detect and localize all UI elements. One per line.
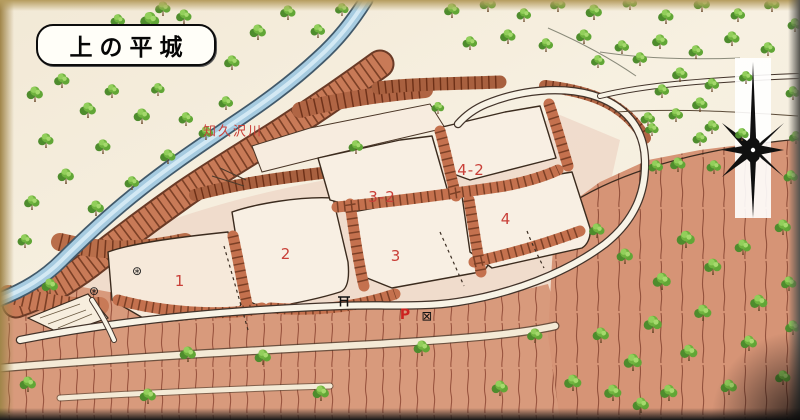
area-label-3-2: 3-2	[368, 188, 396, 206]
river-label: 知久沢川	[203, 121, 263, 140]
area-label-4-2: 4-2	[457, 161, 485, 179]
area-label-2: 2	[281, 245, 292, 263]
map-title: 上の平城	[70, 28, 190, 62]
shrine-icon: ⊛	[132, 264, 142, 278]
map-title-box: 上の平城	[36, 24, 216, 66]
torii-icon	[338, 293, 351, 312]
parking-label: P	[400, 307, 410, 323]
area-label-4: 4	[501, 210, 512, 228]
shrine-icon: ⊛	[89, 284, 99, 298]
castle-map: 上の平城 知久沢川 1 2 3 3-2 4 4-2 P ⊠ ⊛ ⊛	[0, 0, 800, 420]
area-label-3: 3	[391, 247, 402, 265]
gate-box-icon: ⊠	[422, 310, 433, 325]
area-label-1: 1	[175, 272, 186, 290]
